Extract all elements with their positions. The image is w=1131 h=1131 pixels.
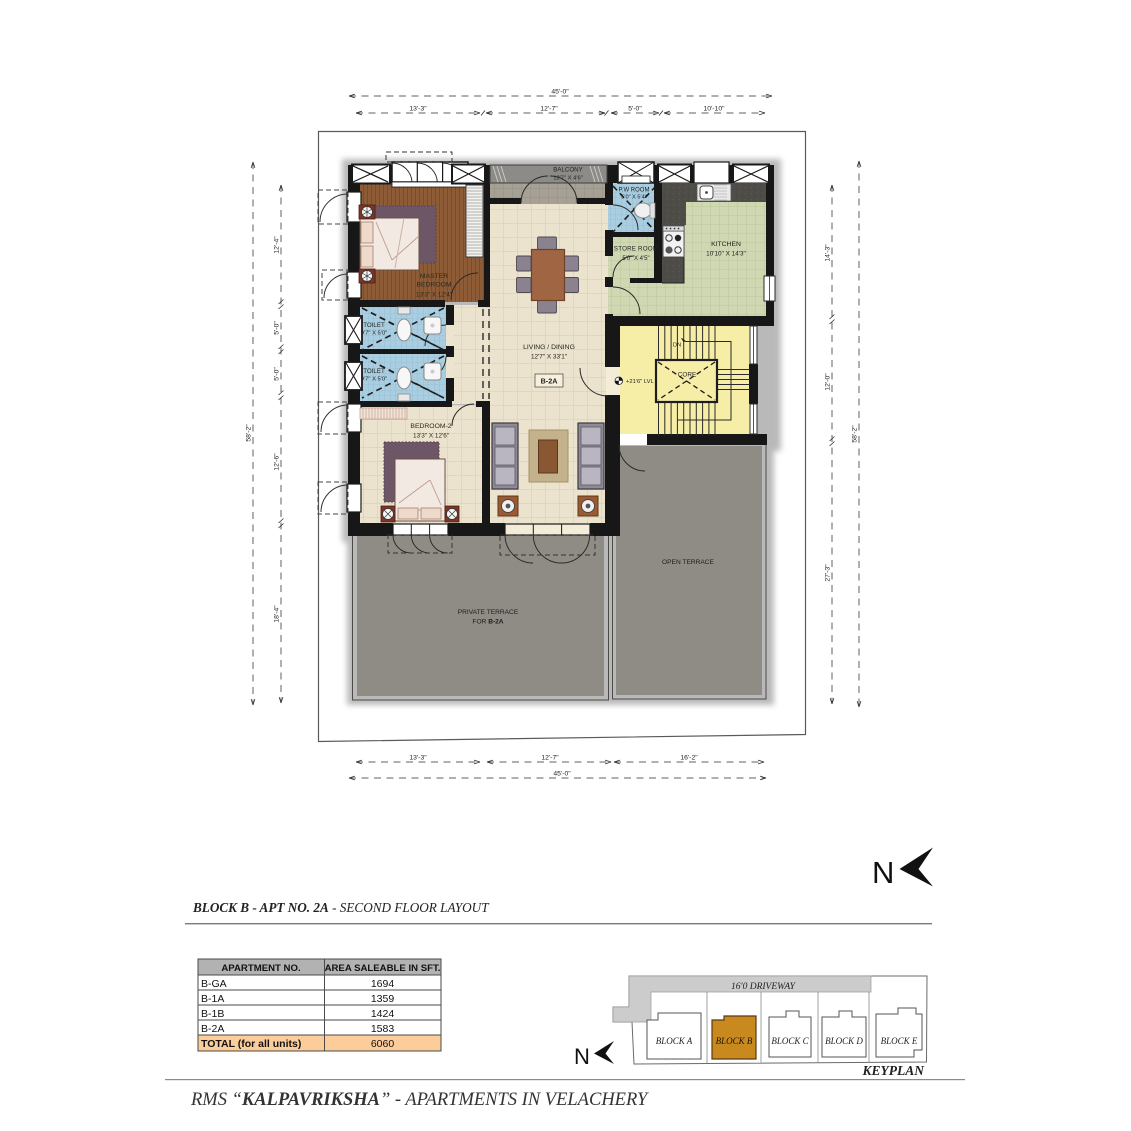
svg-text:16'0 DRIVEWAY: 16'0 DRIVEWAY <box>731 982 797 992</box>
svg-text:STORE ROOM: STORE ROOM <box>614 246 658 253</box>
svg-text:14'-3": 14'-3" <box>825 244 832 262</box>
svg-text:10'10" X 14'3": 10'10" X 14'3" <box>706 251 746 258</box>
svg-text:12'-4": 12'-4" <box>274 236 281 254</box>
svg-text:1424: 1424 <box>371 1008 395 1020</box>
svg-text:13'-3": 13'-3" <box>409 106 427 113</box>
svg-text:5'-0": 5'-0" <box>274 367 281 381</box>
svg-text:58'-2": 58'-2" <box>852 425 859 443</box>
svg-text:B-1A: B-1A <box>201 993 224 1005</box>
svg-text:12'-7": 12'-7" <box>541 755 559 762</box>
svg-text:5'0" X 4'5": 5'0" X 4'5" <box>622 256 649 262</box>
svg-text:12'-7": 12'-7" <box>540 106 558 113</box>
svg-text:B-2A: B-2A <box>541 377 558 386</box>
svg-text:9'7" X 5'0": 9'7" X 5'0" <box>361 331 387 337</box>
svg-text:5'-0": 5'-0" <box>628 106 642 113</box>
svg-text:BLOCK E: BLOCK E <box>881 1036 918 1046</box>
svg-text:12'-0": 12'-0" <box>825 373 832 391</box>
svg-text:6060: 6060 <box>371 1038 395 1050</box>
svg-text:APARTMENT NO.: APARTMENT NO. <box>221 963 300 974</box>
svg-text:BEDROOM: BEDROOM <box>416 282 451 289</box>
svg-text:58'-2": 58'-2" <box>246 424 253 442</box>
svg-text:OPEN TERRACE: OPEN TERRACE <box>662 559 715 566</box>
svg-text:13'3" X 12'4": 13'3" X 12'4" <box>416 292 452 299</box>
svg-text:5'0" X 5'4": 5'0" X 5'4" <box>621 195 646 201</box>
svg-text:BLOCK D: BLOCK D <box>825 1036 863 1046</box>
svg-text:1583: 1583 <box>371 1023 395 1035</box>
svg-text:MASTER: MASTER <box>420 273 448 280</box>
svg-text:CORE: CORE <box>678 372 696 379</box>
svg-text:BALCONY: BALCONY <box>553 167 583 174</box>
svg-text:B-2A: B-2A <box>201 1023 224 1035</box>
svg-text:+21'6" LVL: +21'6" LVL <box>626 379 654 385</box>
svg-text:13'3" X 12'6": 13'3" X 12'6" <box>413 433 449 440</box>
svg-text:45'-0": 45'-0" <box>551 89 569 96</box>
svg-text:TOILET: TOILET <box>363 322 385 329</box>
svg-text:RMS “KALPAVRIKSHA” - APARTMENT: RMS “KALPAVRIKSHA” - APARTMENTS IN VELAC… <box>190 1090 649 1110</box>
svg-text:B-GA: B-GA <box>201 978 227 990</box>
svg-text:TOTAL (for all units): TOTAL (for all units) <box>201 1038 301 1050</box>
svg-text:DN: DN <box>673 343 681 349</box>
svg-text:LIVING / DINING: LIVING / DINING <box>523 344 575 351</box>
svg-text:AREA SALEABLE IN SFT.: AREA SALEABLE IN SFT. <box>325 963 441 974</box>
svg-text:BLOCK B: BLOCK B <box>716 1036 753 1046</box>
svg-text:12'7" X 33'1": 12'7" X 33'1" <box>531 354 567 361</box>
svg-text:12'7" X 4'6": 12'7" X 4'6" <box>553 176 583 182</box>
svg-text:1359: 1359 <box>371 993 395 1005</box>
svg-text:P.W ROOM: P.W ROOM <box>619 188 650 194</box>
svg-text:16'-2": 16'-2" <box>680 755 698 762</box>
svg-text:N: N <box>574 1044 590 1069</box>
svg-text:BEDROOM-2: BEDROOM-2 <box>410 423 451 430</box>
svg-text:FOR B-2A: FOR B-2A <box>472 619 503 626</box>
svg-text:KITCHEN: KITCHEN <box>711 241 741 248</box>
svg-text:B-1B: B-1B <box>201 1008 224 1020</box>
svg-text:BLOCK B - APT NO. 2A - SECOND: BLOCK B - APT NO. 2A - SECOND FLOOR LAYO… <box>192 900 490 915</box>
svg-text:45'-0": 45'-0" <box>553 771 571 778</box>
svg-text:1694: 1694 <box>371 978 395 990</box>
svg-text:BLOCK A: BLOCK A <box>656 1036 693 1046</box>
svg-text:PRIVATE TERRACE: PRIVATE TERRACE <box>458 609 519 616</box>
svg-text:KEYPLAN: KEYPLAN <box>861 1063 925 1078</box>
svg-text:10'-10": 10'-10" <box>703 106 725 113</box>
svg-text:5'-0": 5'-0" <box>274 321 281 335</box>
svg-text:13'-3": 13'-3" <box>409 755 427 762</box>
svg-text:27'-3": 27'-3" <box>825 564 832 582</box>
svg-text:12'-6": 12'-6" <box>274 453 281 471</box>
svg-text:18'-4": 18'-4" <box>274 605 281 623</box>
svg-text:TOILET: TOILET <box>363 368 385 375</box>
svg-text:N: N <box>872 855 894 890</box>
svg-text:9'7" X 5'0": 9'7" X 5'0" <box>361 377 387 383</box>
svg-text:BLOCK C: BLOCK C <box>771 1036 809 1046</box>
